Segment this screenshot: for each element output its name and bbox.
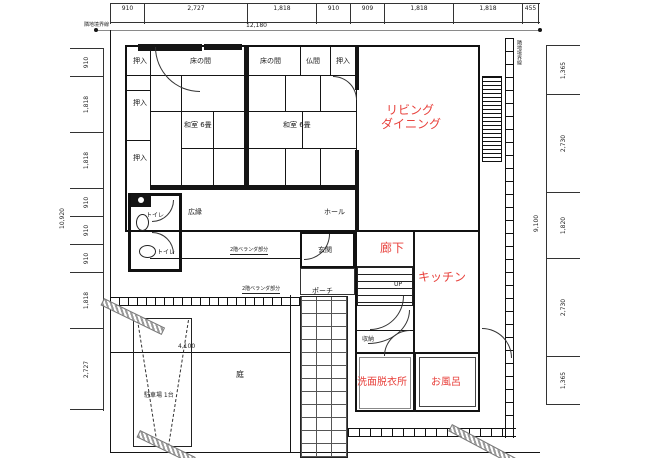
- tatami-line: [249, 148, 356, 149]
- boundary-marker: [94, 28, 98, 32]
- parking-space: [133, 318, 192, 447]
- dim-value: 455: [522, 4, 539, 24]
- fence-bottom: [348, 428, 516, 437]
- tatami-line: [285, 148, 286, 185]
- tatami-line: [320, 148, 321, 185]
- tatami-line: [181, 76, 182, 185]
- right-overall-dim: 9,100: [533, 215, 540, 232]
- wall-segment: [355, 150, 359, 232]
- veranda-overhang-line: [150, 258, 300, 259]
- left-dimension-bar: 910 1,818 1,818 910 910 910 1,818 2,727: [70, 48, 104, 411]
- dim-value: 910: [83, 225, 90, 236]
- stair-up-label: UP: [394, 282, 402, 288]
- dim-value: 1,365: [560, 372, 567, 389]
- room-label-toilet: トイレ: [157, 250, 175, 256]
- dim-value: 910: [110, 4, 144, 24]
- top-dimension-bar: 910 2,727 1,818 910 909 1,818 1,818 455: [110, 3, 540, 23]
- wall-segment: [244, 47, 249, 186]
- living-label-line1: リビング: [386, 104, 441, 118]
- wall-segment: [127, 140, 150, 141]
- veranda-callout: 2階ベランダ部分: [242, 286, 280, 294]
- dim-value: 910: [83, 253, 90, 264]
- wall-segment: [355, 47, 359, 90]
- wall-segment: [330, 47, 331, 75]
- wall-segment: [204, 44, 242, 50]
- room-label-genkan: 玄関: [318, 247, 332, 254]
- tatami-line: [302, 111, 303, 148]
- room-label-bath: お風呂: [431, 377, 461, 389]
- fence-right: [505, 38, 514, 438]
- room-label-hall: ホール: [324, 209, 345, 216]
- boundary-marker: [538, 28, 542, 32]
- dim-value: 910: [316, 4, 350, 24]
- dim-value: 1,818: [384, 4, 453, 24]
- dim-value: 1,818: [247, 4, 316, 24]
- dim-value: 1,818: [453, 4, 522, 24]
- living-label-line2: ダイニング: [381, 118, 441, 132]
- dim-value: 2,727: [144, 4, 247, 24]
- tatami-line: [320, 76, 321, 111]
- tatami-line: [181, 148, 244, 149]
- wall-segment: [150, 185, 356, 190]
- site-boundary-top: [95, 30, 541, 31]
- room-label-washitsu: 和室 6畳: [283, 122, 311, 129]
- boundary-label-right: 隣地境界線: [516, 40, 521, 65]
- room-label-corridor: 廊下: [380, 242, 404, 256]
- dim-value: 2,730: [560, 135, 567, 152]
- room-label-living: リビング ダイニング: [386, 104, 441, 132]
- room-label-storage: 収納: [362, 337, 374, 343]
- dim-value: 1,818: [83, 96, 90, 113]
- dim-value: 1,818: [83, 152, 90, 169]
- boundary-label: 隣地境界線: [84, 23, 109, 28]
- tatami-line: [285, 76, 286, 111]
- room-label-washitsu: 和室 6畳: [184, 122, 212, 129]
- room-label-tokonoma: 床の間: [260, 58, 281, 65]
- wall-segment: [150, 47, 151, 188]
- room-label-oshiire: 押入: [133, 100, 147, 107]
- room-label-toilet: トイレ: [146, 213, 164, 219]
- parking-label: 駐車場 1台: [144, 393, 174, 399]
- room-label-oshiire: 押入: [133, 155, 147, 162]
- approach-walkway: [300, 296, 348, 458]
- right-dimension-bar: 1,365 2,730 1,820 2,730 1,365: [546, 45, 580, 405]
- garden-divider: [290, 295, 291, 452]
- garden-label: 庭: [236, 371, 244, 379]
- wall-segment: [127, 75, 357, 76]
- wall-segment: [415, 354, 416, 412]
- east-deck: [482, 76, 502, 162]
- room-label-hiroen: 広縁: [188, 209, 202, 216]
- washbasin-bowl: [138, 197, 144, 203]
- dim-value: 910: [83, 197, 90, 208]
- left-overall-dim: 10,920: [59, 208, 66, 229]
- dim-value: 2,730: [560, 299, 567, 316]
- dim-value: 1,820: [560, 217, 567, 234]
- room-label-kitchen: キッチン: [418, 271, 466, 285]
- room-label-oshiire: 押入: [336, 58, 350, 65]
- veranda-callout: 2階ベランダ部分: [230, 247, 268, 255]
- dim-value: 910: [83, 57, 90, 68]
- dim-value: 1,365: [560, 61, 567, 78]
- wall-segment: [127, 90, 150, 91]
- tatami-line: [150, 111, 244, 112]
- floor-plan-canvas: 910 2,727 1,818 910 909 1,818 1,818 455 …: [0, 0, 646, 458]
- veranda-overhang-hatch: [110, 297, 302, 306]
- room-label-butsuma: 仏間: [306, 58, 320, 65]
- room-label-washroom: 洗面脱衣所: [357, 377, 407, 389]
- garden-width-dim: 4,100: [178, 344, 195, 350]
- room-label-porch: ポーチ: [312, 288, 333, 295]
- room-label-oshiire: 押入: [133, 58, 147, 65]
- dim-value: 1,818: [83, 292, 90, 309]
- wall-segment: [355, 352, 480, 354]
- site-width-dim: 12,180: [246, 23, 267, 29]
- site-boundary-left: [110, 30, 111, 452]
- dim-value: 909: [350, 4, 384, 24]
- dim-value: 2,727: [83, 360, 90, 377]
- room-label-tokonoma: 床の間: [190, 58, 211, 65]
- wall-segment: [300, 47, 301, 75]
